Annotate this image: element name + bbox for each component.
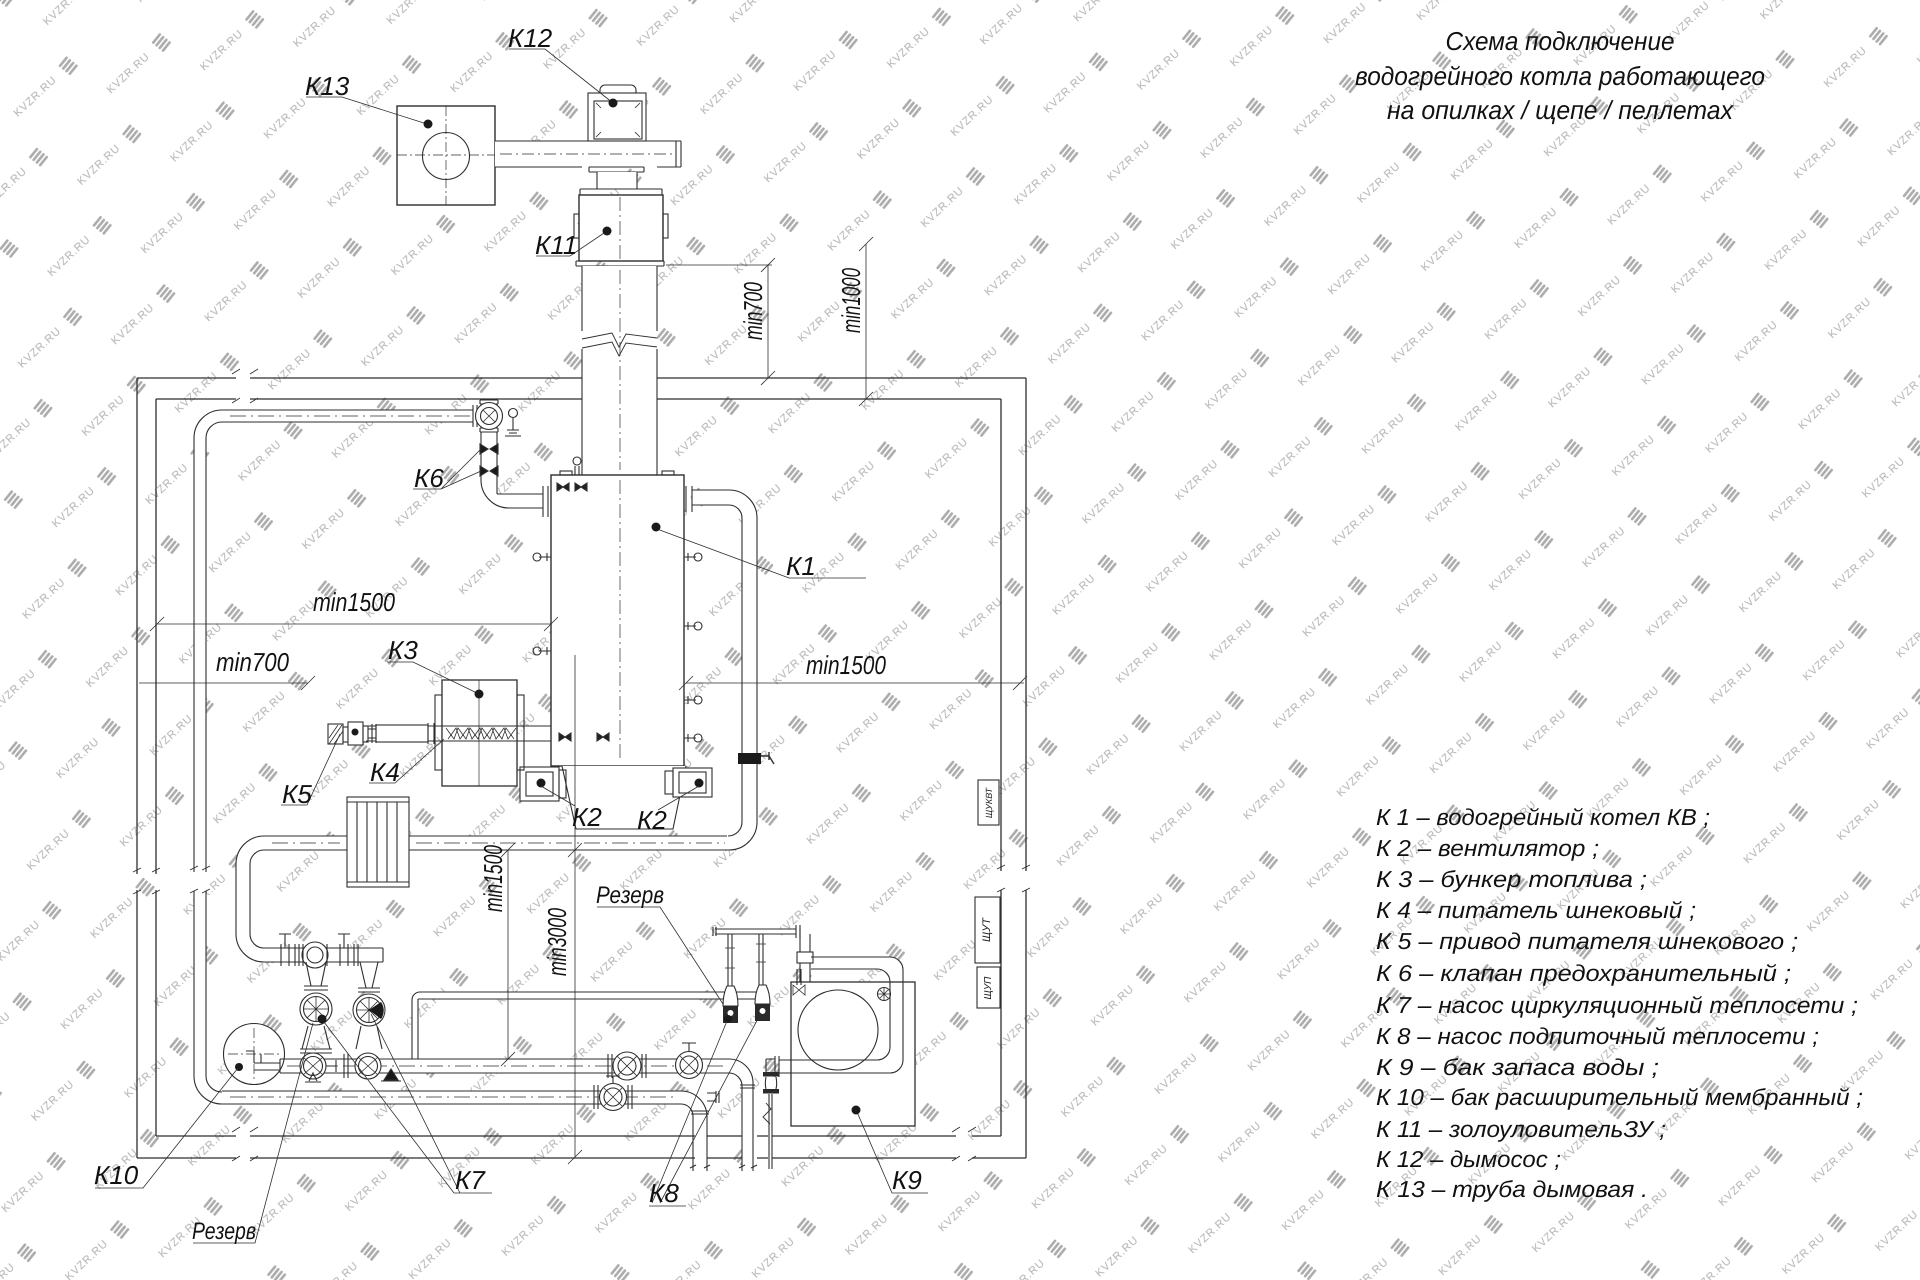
svg-text:ЩУКВТ: ЩУКВТ bbox=[984, 786, 994, 818]
svg-text:min1500: min1500 bbox=[478, 845, 508, 912]
svg-text:min3000: min3000 bbox=[542, 908, 572, 976]
svg-text:К13: К13 bbox=[305, 71, 350, 101]
svg-text:К11: К11 bbox=[535, 230, 577, 260]
svg-text:К 3 – бункер топлива ;: К 3 – бункер топлива ; bbox=[1376, 866, 1647, 892]
svg-text:ЩУП: ЩУП bbox=[983, 976, 994, 1000]
svg-text:Резерв: Резерв bbox=[192, 1218, 256, 1245]
svg-text:min1500: min1500 bbox=[806, 650, 886, 680]
svg-text:min1500: min1500 bbox=[313, 587, 395, 617]
svg-text:К4: К4 bbox=[370, 757, 400, 787]
svg-text:К 6 – клапан предохранительн: К 6 – клапан предохранительный ; bbox=[1376, 960, 1791, 986]
svg-text:К9: К9 bbox=[892, 1165, 922, 1195]
svg-text:К2: К2 bbox=[572, 802, 602, 832]
svg-text:К 1 – водогрейный котел КВ ;: К 1 – водогрейный котел КВ ; bbox=[1376, 804, 1710, 830]
svg-text:К8: К8 bbox=[649, 1178, 679, 1208]
svg-text:min700: min700 bbox=[738, 282, 768, 340]
svg-text:ЩУТ: ЩУТ bbox=[981, 917, 993, 942]
svg-text:водогрейного котла работающего: водогрейного котла работающего bbox=[1355, 61, 1765, 91]
svg-text:на опилках / щепе / пеллетах: на опилках / щепе / пеллетах bbox=[1387, 95, 1734, 125]
svg-text:К 8 – насос подпиточный тепл: К 8 – насос подпиточный теплосети ; bbox=[1376, 1023, 1819, 1049]
svg-text:Резерв: Резерв bbox=[596, 882, 664, 909]
svg-text:К 13 – труба дымовая .: К 13 – труба дымовая . bbox=[1376, 1176, 1648, 1202]
svg-text:К 2 – вентилятор ;: К 2 – вентилятор ; bbox=[1376, 835, 1599, 861]
svg-text:К 4 – питатель шнековый ;: К 4 – питатель шнековый ; bbox=[1376, 897, 1696, 923]
svg-text:К 11 – золоуловительЗУ ;: К 11 – золоуловительЗУ ; bbox=[1376, 1116, 1666, 1142]
svg-text:К7: К7 bbox=[455, 1165, 486, 1195]
svg-text:К 7 – насос циркуляционный т: К 7 – насос циркуляционный теплосети ; bbox=[1376, 992, 1858, 1018]
svg-text:К12: К12 bbox=[508, 23, 553, 53]
svg-text:К3: К3 bbox=[388, 635, 418, 665]
svg-text:Схема подключение: Схема подключение bbox=[1446, 26, 1675, 56]
svg-text:К 9 – бак запаса воды ;: К 9 – бак запаса воды ; bbox=[1376, 1054, 1659, 1080]
svg-text:К6: К6 bbox=[414, 463, 444, 493]
svg-text:К5: К5 bbox=[282, 779, 312, 809]
svg-text:К 12 – дымосос ;: К 12 – дымосос ; bbox=[1376, 1146, 1561, 1172]
svg-text:К2: К2 bbox=[637, 805, 667, 835]
svg-text:К 5 – привод питателя шнеков: К 5 – привод питателя шнекового ; bbox=[1376, 928, 1798, 954]
svg-text:К1: К1 bbox=[786, 551, 816, 581]
svg-text:К10: К10 bbox=[94, 1160, 139, 1190]
svg-text:К 10 – бак расширительный ме: К 10 – бак расширительный мембранный ; bbox=[1376, 1084, 1863, 1110]
svg-text:min1000: min1000 bbox=[836, 268, 866, 333]
svg-text:min700: min700 bbox=[216, 647, 289, 677]
